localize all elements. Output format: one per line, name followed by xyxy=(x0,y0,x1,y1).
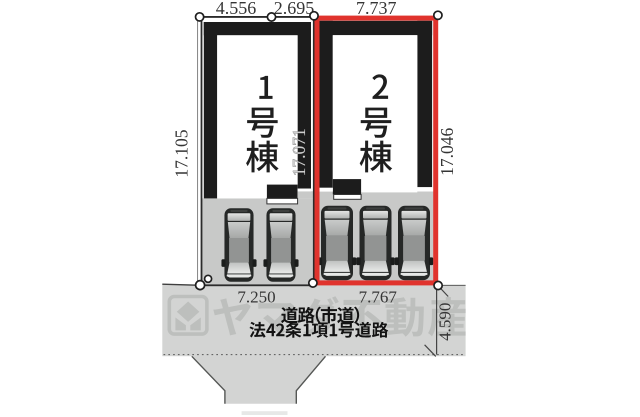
svg-text:17.071: 17.071 xyxy=(289,128,309,176)
svg-text:17.046: 17.046 xyxy=(437,127,457,175)
svg-text:7.250: 7.250 xyxy=(237,287,275,306)
svg-text:7.767: 7.767 xyxy=(359,287,398,306)
svg-text:4.590: 4.590 xyxy=(436,303,455,341)
svg-text:7.737: 7.737 xyxy=(356,0,397,18)
svg-text:17.105: 17.105 xyxy=(172,129,192,177)
svg-text:2.695: 2.695 xyxy=(274,0,315,18)
svg-text:4.556: 4.556 xyxy=(216,0,257,18)
